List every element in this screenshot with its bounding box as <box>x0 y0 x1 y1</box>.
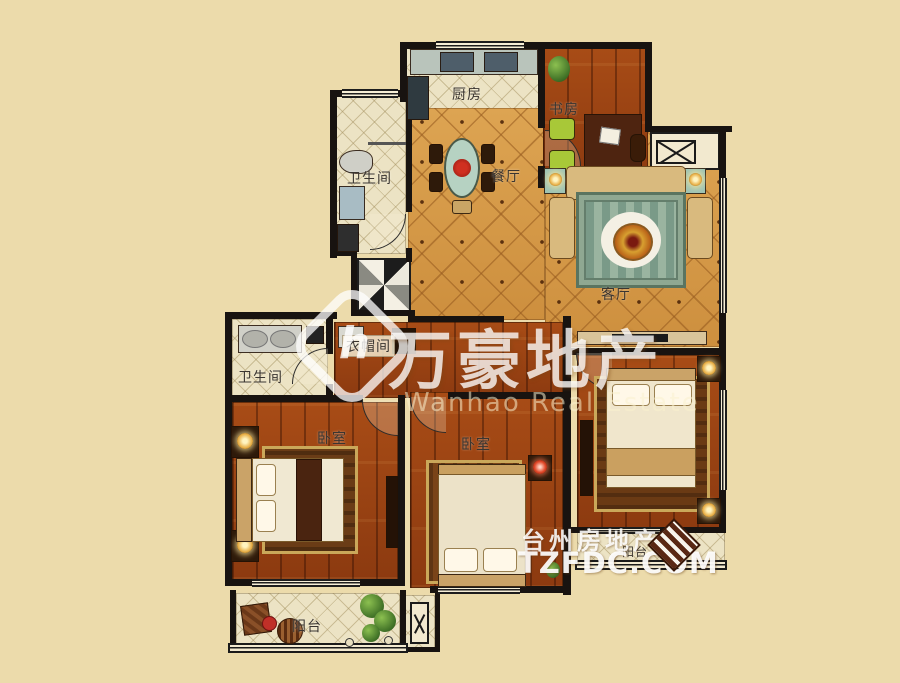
dining-label: 餐厅 <box>491 166 521 186</box>
dining-chair-3 <box>481 144 495 164</box>
wall-study-right <box>645 42 652 132</box>
bedroom-left-throw <box>296 459 322 541</box>
living-lamp-right-icon <box>689 173 702 186</box>
bedroom-right-window <box>719 390 727 490</box>
dining-chair-5 <box>452 200 472 214</box>
bathroom-upper-window <box>342 89 398 98</box>
nightstand-left-1-lamp-icon <box>237 433 253 449</box>
bedroom-right-lamp-2-icon <box>702 503 716 517</box>
wall-bedroom-left-right <box>398 395 405 586</box>
living-label: 客厅 <box>601 284 631 304</box>
balcony-drain-2-icon <box>345 638 354 647</box>
wall-balcony-bottom-right <box>400 590 406 650</box>
bath-lower-sink-1-icon <box>242 330 268 348</box>
wall-kitchen-study-upper <box>538 42 545 128</box>
bathroom-upper-label: 卫生间 <box>347 168 392 188</box>
wall-shaft-right <box>435 593 440 651</box>
kitchen-counter <box>410 49 538 75</box>
bedroom-middle-label: 卧室 <box>461 434 491 454</box>
bedroom-left-pillow-1 <box>256 464 276 496</box>
living-window <box>719 178 727 313</box>
bedroom-middle-pillow-1 <box>444 548 478 572</box>
balcony-bottom-railing <box>228 643 408 653</box>
balcony-red-stool-icon <box>262 616 277 631</box>
dining-chair-2 <box>429 172 443 192</box>
living-rug-medallion-star-icon <box>613 223 653 261</box>
study-label: 书房 <box>549 99 579 119</box>
shaft-symbol-icon <box>410 602 429 644</box>
bedroom-middle-headboard <box>438 574 526 587</box>
bedroom-middle-window <box>438 586 520 594</box>
dining-table-flower-icon <box>453 159 471 177</box>
bedroom-left-pillow-2 <box>256 500 276 532</box>
bedroom-left-label: 卧室 <box>317 428 347 448</box>
bathroom-upper-shelf <box>368 142 406 145</box>
bedroom-middle-pillow-2 <box>483 548 517 572</box>
living-lamp-left-icon <box>549 173 562 186</box>
balcony-plant-3-icon <box>362 624 380 642</box>
wall-shaft-bottom <box>403 647 440 652</box>
kitchen-sink-icon <box>440 52 474 72</box>
wall-bath-upper-right-lower <box>406 248 412 262</box>
kitchen-stove-icon <box>484 52 518 72</box>
study-laptop-icon <box>599 127 621 146</box>
dining-floor <box>408 108 545 320</box>
flue-box-icon <box>656 140 696 164</box>
study-office-chair <box>630 134 646 162</box>
study-plant-icon <box>548 56 570 82</box>
bedroom-right-dresser <box>580 420 593 496</box>
wall-left-upper <box>330 90 337 258</box>
wanhao-watermark-en: Wanhao Real Estate <box>404 388 700 418</box>
bath-lower-sink-2-icon <box>270 330 296 348</box>
wanhao-logo-letter: h <box>317 318 391 369</box>
kitchen-label: 厨房 <box>452 84 482 104</box>
balcony-drain-1-icon <box>384 636 393 645</box>
sofa-arm-right <box>687 197 713 259</box>
bathroom-lower-label: 卫生间 <box>238 367 283 387</box>
wall-balcony-bottom-left <box>230 590 236 650</box>
bedroom-right-blanket <box>606 448 696 476</box>
bedroom-left-window <box>252 579 360 587</box>
bedroom-middle-red-lamp-icon <box>533 460 547 474</box>
dining-chair-1 <box>429 144 443 164</box>
bathroom-upper-cabinet <box>337 224 359 252</box>
study-chair-1 <box>549 118 575 140</box>
bedroom-left-tv-cabinet <box>386 476 398 548</box>
kitchen-fridge <box>407 76 429 120</box>
washer-icon <box>339 186 365 220</box>
sofa-arm-left <box>549 197 575 259</box>
balcony-bottom-label: 阳台 <box>292 616 322 636</box>
floor-plan-canvas: 厨房 书房 卫生间 餐厅 客厅 衣帽间 卫生间 卧室 卧室 阳台 阳台 h 万豪… <box>0 0 900 683</box>
bedroom-left-headboard <box>236 458 252 542</box>
bedroom-right-lamp-1-icon <box>702 361 716 375</box>
